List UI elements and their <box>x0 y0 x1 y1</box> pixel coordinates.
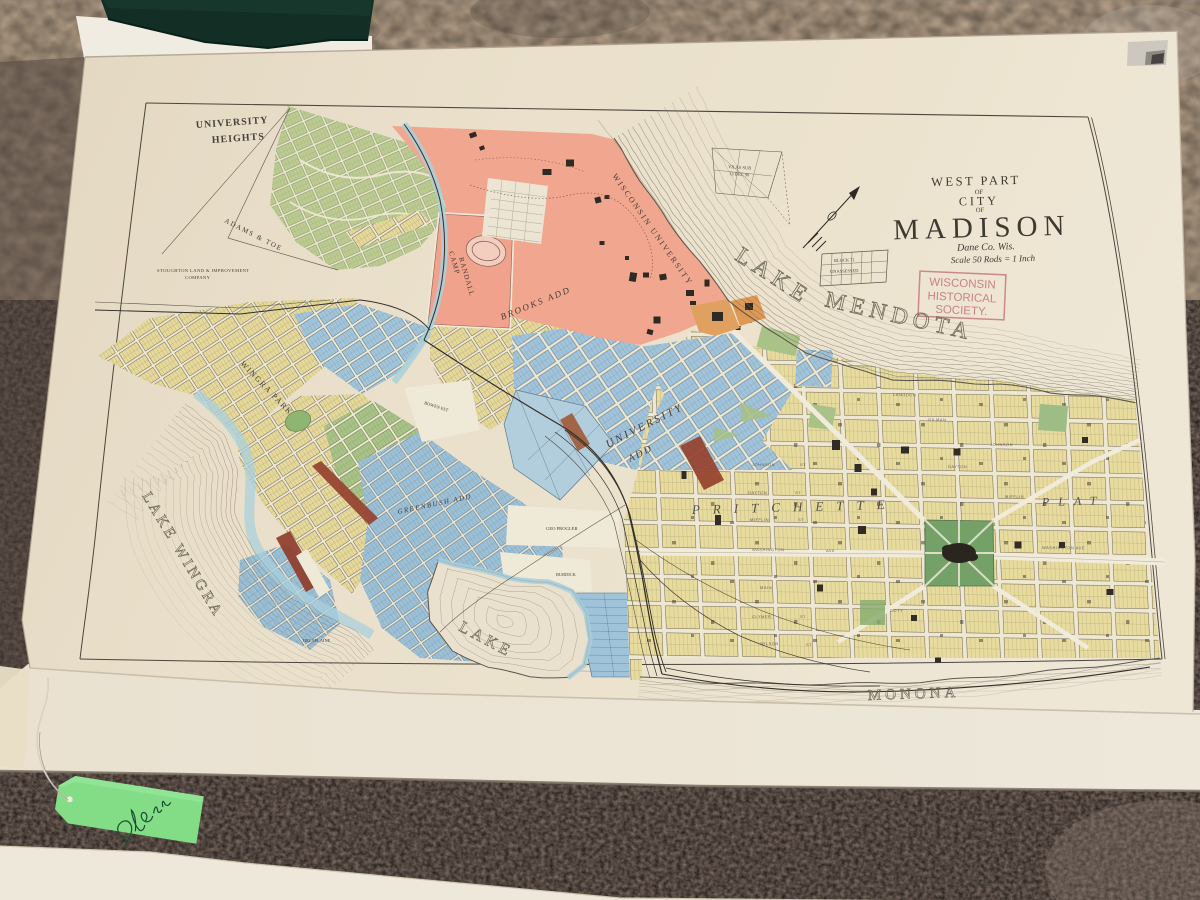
svg-text:MIFFLIN: MIFFLIN <box>750 517 769 522</box>
svg-text:LANGDON: LANGDON <box>893 392 916 397</box>
svg-text:DAYTON: DAYTON <box>948 464 967 469</box>
svg-text:GILMAN: GILMAN <box>928 417 946 422</box>
svg-text:WILSON: WILSON <box>760 641 779 646</box>
svg-text:DAYTON: DAYTON <box>748 490 767 495</box>
svg-text:PLAT: PLAT <box>1041 493 1106 509</box>
svg-text:ST: ST <box>800 614 806 619</box>
svg-text:BLOCK 71: BLOCK 71 <box>834 257 855 263</box>
svg-text:WASHINGTON: WASHINGTON <box>752 547 784 552</box>
svg-text:ST: ST <box>806 642 812 647</box>
svg-text:COMPANY: COMPANY <box>185 275 211 280</box>
svg-text:JOHNSON: JOHNSON <box>752 462 775 467</box>
svg-text:STOUGHTON LAND & IMPROVEMENT: STOUGHTON LAND & IMPROVEMENT <box>157 268 250 273</box>
svg-text:MONONA: MONONA <box>868 685 960 704</box>
svg-text:MADISON: MADISON <box>893 210 1071 247</box>
svg-text:WEST PART: WEST PART <box>931 173 1021 189</box>
svg-text:AVE: AVE <box>826 548 835 553</box>
svg-text:DELAPLAINE: DELAPLAINE <box>303 638 331 643</box>
svg-text:Dane Co. Wis.: Dane Co. Wis. <box>956 241 1015 254</box>
svg-text:MIFFLIN: MIFFLIN <box>1005 494 1024 499</box>
svg-text:UNASSESSED: UNASSESSED <box>830 268 859 274</box>
svg-text:ST: ST <box>795 490 801 495</box>
svg-text:WASHINGTON AVE: WASHINGTON AVE <box>1042 545 1085 550</box>
svg-text:GEO PROGLER: GEO PROGLER <box>546 526 578 531</box>
svg-text:ST: ST <box>800 462 806 467</box>
svg-text:CLYMER: CLYMER <box>752 614 771 619</box>
svg-text:JOHNSON: JOHNSON <box>990 442 1013 447</box>
svg-text:ST: ST <box>798 517 804 522</box>
svg-text:DOTY: DOTY <box>890 608 903 613</box>
svg-text:BURDICK: BURDICK <box>556 572 577 577</box>
svg-text:MAIN: MAIN <box>760 585 772 590</box>
